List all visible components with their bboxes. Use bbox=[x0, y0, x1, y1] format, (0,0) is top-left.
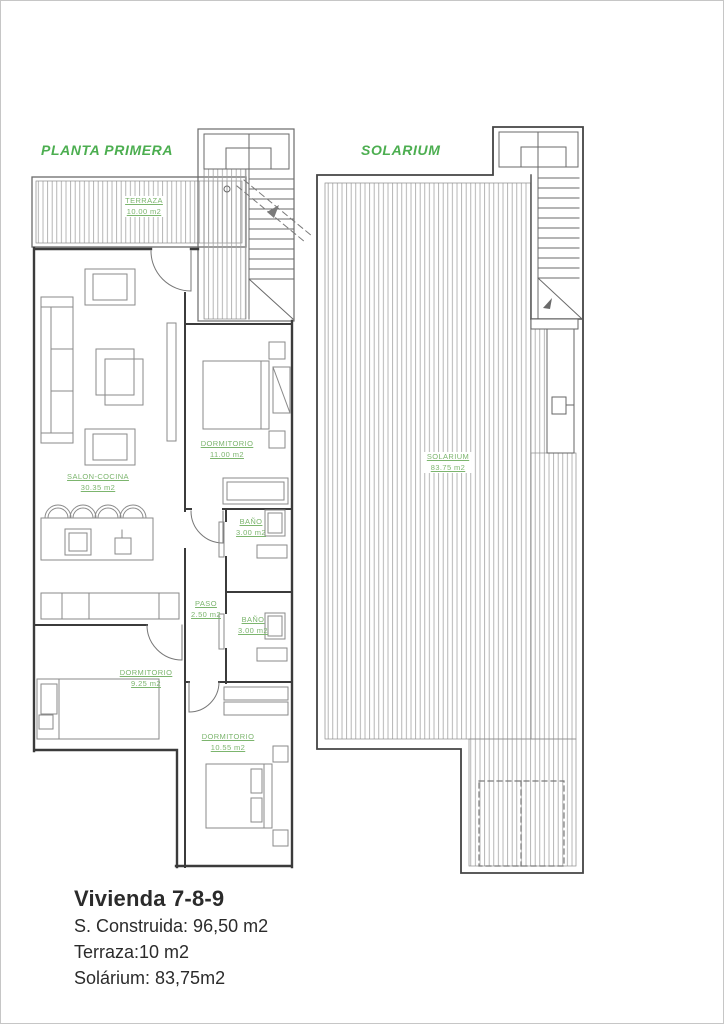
bedroom-door bbox=[147, 625, 182, 660]
room-label-dormitorio-11: DORMITORIO 11.00 m2 bbox=[201, 439, 254, 460]
room-label-paso: PASO 2.50 m2 bbox=[191, 599, 221, 620]
dwelling-title: Vivienda 7-8-9 bbox=[74, 885, 268, 913]
room-label-terraza: TERRAZA 10.00 m2 bbox=[122, 196, 166, 217]
bed-dormitorio-11 bbox=[203, 342, 290, 448]
room-label-dormitorio-9: DORMITORIO 9.25 m2 bbox=[120, 668, 173, 689]
desk bbox=[223, 478, 288, 504]
built-area: S. Construida: 96,50 m2 bbox=[74, 913, 268, 939]
stair-treads bbox=[249, 179, 293, 279]
terraza-door bbox=[151, 251, 191, 291]
planta-primera-plan bbox=[32, 129, 312, 867]
planta-primera-title: PLANTA PRIMERA bbox=[41, 142, 173, 158]
cooktop bbox=[115, 538, 131, 554]
sofa bbox=[41, 297, 73, 443]
sideboard bbox=[41, 593, 179, 619]
tv-cabinet bbox=[167, 323, 176, 441]
solarium-plan bbox=[317, 127, 583, 873]
armchair bbox=[85, 269, 135, 305]
room-label-bano-1: BAÑO 3.00 m2 bbox=[236, 517, 266, 538]
stair-diagonal bbox=[538, 278, 581, 318]
stair-diagonal bbox=[249, 279, 293, 319]
section-arrow bbox=[267, 205, 279, 218]
room-label-dormitorio-10: DORMITORIO 10.55 m2 bbox=[202, 732, 255, 753]
terrace-area: Terraza:10 m2 bbox=[74, 939, 268, 965]
room-label-salon-cocina: SALON-COCINA 30.35 m2 bbox=[67, 472, 129, 493]
bottom-bedroom-door bbox=[189, 682, 219, 712]
armchair bbox=[85, 429, 135, 465]
floorplan-page: PLANTA PRIMERA SOLARIUM TERRAZA 10.00 m2… bbox=[0, 0, 724, 1024]
bed-dormitorio-10 bbox=[206, 687, 288, 846]
kitchen-counter bbox=[41, 505, 153, 560]
room-label-solarium: SOLARIUM 83.75 m2 bbox=[424, 452, 472, 473]
dormitorio-door bbox=[191, 511, 223, 543]
stairwell-left bbox=[198, 129, 294, 321]
summary-block: Vivienda 7-8-9 S. Construida: 96,50 m2 T… bbox=[74, 885, 268, 991]
solarium-area: Solárium: 83,75m2 bbox=[74, 965, 268, 991]
stair-arrow bbox=[543, 298, 552, 309]
solarium-title: SOLARIUM bbox=[361, 142, 440, 158]
stair-treads bbox=[538, 178, 579, 278]
room-label-bano-2: BAÑO 3.00 m2 bbox=[238, 615, 268, 636]
coffee-tables bbox=[96, 349, 143, 405]
furniture bbox=[37, 269, 290, 846]
